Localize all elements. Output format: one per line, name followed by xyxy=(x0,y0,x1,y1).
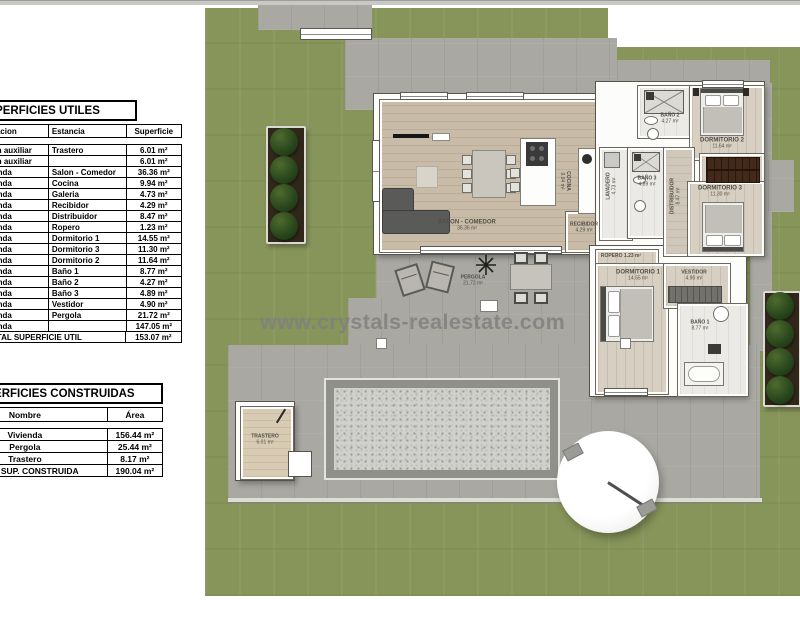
trastero-annex xyxy=(289,452,311,476)
outdoor-chair xyxy=(514,252,528,264)
pergola-post xyxy=(620,338,631,349)
cell-edificacion: Vivienda xyxy=(0,200,49,210)
cell-estancia: Galeria xyxy=(49,189,127,199)
construidas-total-value: 190.04 m² xyxy=(108,465,163,476)
cell-nombre: Trastero xyxy=(0,453,108,464)
cell-superficie: 11.30 m² xyxy=(127,244,182,254)
bush-icon xyxy=(270,184,298,212)
wardrobe-2 xyxy=(706,170,760,183)
table-row: ViviendaPergola21.72 m² xyxy=(0,310,182,321)
cell-edificacion: Vivienda xyxy=(0,244,49,254)
cell-edificacion: Vivienda xyxy=(0,189,49,199)
utiles-rows: Edificacion auxiliarTrastero6.01 m²Edifi… xyxy=(0,144,182,332)
cell-estancia: Baño 3 xyxy=(49,288,127,298)
table-row: ViviendaRopero1.23 m² xyxy=(0,222,182,233)
table-row: Edificacion auxiliar6.01 m² xyxy=(0,156,182,167)
construidas-header-nombre: Nombre xyxy=(0,408,108,421)
outdoor-chair xyxy=(534,292,548,304)
cell-estancia: Distribuidor xyxy=(49,211,127,221)
utiles-header-estancia: Estancia xyxy=(49,125,127,137)
cell-edificacion: Vivienda xyxy=(0,178,49,188)
cell-superficie: 4.73 m² xyxy=(127,189,182,199)
table-row: Pergola25.44 m² xyxy=(0,441,163,453)
cell-estancia: Dormitorio 1 xyxy=(49,233,127,243)
label-trastero: TRASTERO6.01 m² xyxy=(251,434,279,446)
plant-icon xyxy=(476,255,496,275)
cell-superficie: 6.01 m² xyxy=(127,145,182,155)
table-row: Vivienda147.05 m² xyxy=(0,321,182,332)
cell-area: 8.17 m² xyxy=(108,453,163,464)
nightstand xyxy=(693,88,699,96)
cell-superficie: 9.94 m² xyxy=(127,178,182,188)
table-row: Trastero8.17 m² xyxy=(0,453,163,465)
label-recibidor: RECIBIDOR4.29 m² xyxy=(570,222,598,234)
outdoor-chair xyxy=(534,252,548,264)
cell-estancia xyxy=(49,156,127,166)
cell-edificacion: Vivienda xyxy=(0,266,49,276)
burner xyxy=(530,156,535,161)
superficies-construidas-table: SUPERFICIES CONSTRUIDAS Nombre Área Vivi… xyxy=(0,383,163,477)
label-salon: SALON - COMEDOR36.36 m² xyxy=(438,220,496,233)
bath-mat xyxy=(708,344,721,354)
table-row: ViviendaRecibidor4.29 m² xyxy=(0,200,182,211)
cell-superficie: 147.05 m² xyxy=(127,321,182,331)
table-row: ViviendaCocina9.94 m² xyxy=(0,178,182,189)
cell-edificacion: Vivienda xyxy=(0,310,49,320)
wardrobe-1 xyxy=(706,157,760,170)
cell-superficie: 4.27 m² xyxy=(127,277,182,287)
label-cocina: COCINA9.94 m² xyxy=(558,171,570,191)
bush-icon xyxy=(270,128,298,156)
label-dormitorio3: DORMITORIO 311.30 m² xyxy=(698,186,742,199)
label-bano1: BAÑO 18.77 m² xyxy=(691,320,710,332)
utiles-header-superficie: Superficie xyxy=(127,125,182,137)
cell-area: 25.44 m² xyxy=(108,441,163,452)
cell-edificacion: Vivienda xyxy=(0,222,49,232)
toilet-bano3 xyxy=(634,200,646,212)
cell-estancia: Recibidor xyxy=(49,200,127,210)
living-window-2 xyxy=(466,92,524,100)
floor-plan-page: SALON - COMEDOR36.36 m² COCINA9.94 m² RE… xyxy=(0,0,800,640)
construidas-header-area: Área xyxy=(108,408,163,421)
cell-superficie: 11.64 m² xyxy=(127,255,182,265)
dining-table xyxy=(472,150,506,198)
cell-nombre: Pergola xyxy=(0,441,108,452)
outdoor-table xyxy=(510,264,552,290)
label-vestidor: VESTIDOR4.90 m² xyxy=(681,270,707,282)
bed-dormitorio2 xyxy=(700,88,744,136)
table-row: Edificacion auxiliarTrastero6.01 m² xyxy=(0,145,182,156)
cell-edificacion: Vivienda xyxy=(0,288,49,298)
sideboard xyxy=(432,133,450,141)
label-distribuidor: DISTRIBUIDOR8.47 m² xyxy=(670,178,682,214)
cell-edificacion: Vivienda xyxy=(0,321,49,331)
terrace-bottom-curb xyxy=(228,498,762,503)
construidas-total-row: TOTAL SUP. CONSTRUIDA 190.04 m² xyxy=(0,465,163,477)
rug xyxy=(416,166,438,188)
utiles-header-edificacion: Edificacion xyxy=(0,125,49,137)
terrace-right-porch xyxy=(768,160,794,212)
table-row: ViviendaSalon - Comedor36.36 m² xyxy=(0,167,182,178)
nightstand xyxy=(743,88,749,96)
cell-superficie: 14.55 m² xyxy=(127,233,182,243)
cell-estancia: Pergola xyxy=(49,310,127,320)
sink-bano2 xyxy=(644,116,658,125)
table-row: ViviendaBaño 34.89 m² xyxy=(0,288,182,299)
cell-estancia: Baño 2 xyxy=(49,277,127,287)
pool xyxy=(334,388,550,470)
cell-nombre: Vivienda xyxy=(0,429,108,440)
cell-edificacion: Vivienda xyxy=(0,167,49,177)
gate xyxy=(300,28,372,40)
cell-superficie: 8.47 m² xyxy=(127,211,182,221)
construidas-title: SUPERFICIES CONSTRUIDAS xyxy=(0,383,163,404)
cell-superficie: 4.29 m² xyxy=(127,200,182,210)
kitchen-sink xyxy=(582,154,592,164)
table-row: Vivienda156.44 m² xyxy=(0,429,163,441)
cell-edificacion: Vivienda xyxy=(0,277,49,287)
dorm1-window xyxy=(604,388,648,396)
living-window-1 xyxy=(400,92,448,100)
table-row: ViviendaDormitorio 114.55 m² xyxy=(0,233,182,244)
burner xyxy=(539,156,544,161)
table-row: ViviendaDormitorio 211.64 m² xyxy=(0,255,182,266)
cell-estancia: Trastero xyxy=(49,145,127,155)
bush-icon xyxy=(766,348,794,376)
superficies-utiles-table: SUPERFICIES UTILES Edificacion Estancia … xyxy=(0,100,182,343)
burner xyxy=(530,146,535,151)
label-dormitorio1: DORMITORIO 114.55 m² xyxy=(616,270,660,283)
page-bottom-border xyxy=(0,0,800,5)
bathtub-bano1 xyxy=(684,362,724,386)
cooktop xyxy=(526,142,548,166)
shower-head xyxy=(634,154,641,161)
bush-icon xyxy=(270,156,298,184)
dining-chair xyxy=(462,183,472,193)
sink-bano1 xyxy=(713,306,729,322)
outdoor-chair xyxy=(514,292,528,304)
table-row: ViviendaVestidor4.90 m² xyxy=(0,299,182,310)
utiles-title: SUPERFICIES UTILES xyxy=(0,100,137,121)
cell-estancia: Salon - Comedor xyxy=(49,167,127,177)
bar-stool xyxy=(510,168,520,178)
vestidor-wardrobe xyxy=(668,286,722,303)
shower-head xyxy=(646,92,654,100)
toilet-bano2 xyxy=(647,128,659,140)
cell-edificacion: Vivienda xyxy=(0,299,49,309)
cell-estancia: Vestidor xyxy=(49,299,127,309)
bed-dormitorio3 xyxy=(702,202,744,252)
cell-edificacion: Vivienda xyxy=(0,211,49,221)
bush-icon xyxy=(766,376,794,404)
cell-estancia xyxy=(49,321,127,331)
dorm2-window xyxy=(702,80,744,88)
cell-estancia: Dormitorio 3 xyxy=(49,244,127,254)
cell-superficie: 8.77 m² xyxy=(127,266,182,276)
dining-chair xyxy=(462,155,472,165)
utiles-total-label: TOTAL SUPERFICIE UTIL xyxy=(0,332,126,342)
bush-icon xyxy=(766,320,794,348)
label-ropero: ROPERO 1.23 m² xyxy=(601,254,641,260)
bush-icon xyxy=(766,292,794,320)
cell-superficie: 36.36 m² xyxy=(127,167,182,177)
construidas-header-row: Nombre Área xyxy=(0,407,163,422)
table-row: ViviendaBaño 24.27 m² xyxy=(0,277,182,288)
cell-edificacion: Vivienda xyxy=(0,233,49,243)
watermark: www.crystals-realestate.com xyxy=(260,310,565,335)
label-bano2: BAÑO 24.27 m² xyxy=(661,113,680,125)
bar-stool xyxy=(510,182,520,192)
construidas-total-label: TOTAL SUP. CONSTRUIDA xyxy=(0,465,108,476)
cell-estancia: Ropero xyxy=(49,222,127,232)
utiles-total-value: 153.07 m² xyxy=(126,332,182,342)
table-row: ViviendaGaleria4.73 m² xyxy=(0,189,182,200)
cell-estancia: Baño 1 xyxy=(49,266,127,276)
cell-edificacion: Vivienda xyxy=(0,255,49,265)
utiles-header-row: Edificacion Estancia Superficie xyxy=(0,124,182,138)
dining-chair xyxy=(462,169,472,179)
cell-edificacion: Edificacion auxiliar xyxy=(0,145,49,155)
tv-unit xyxy=(393,134,429,138)
label-dormitorio2: DORMITORIO 211.64 m² xyxy=(700,138,744,151)
living-window-left xyxy=(372,140,380,202)
pergola-post xyxy=(376,338,387,349)
table-row: ViviendaBaño 18.77 m² xyxy=(0,266,182,277)
cell-edificacion: Edificacion auxiliar xyxy=(0,156,49,166)
dining-chair xyxy=(506,155,516,165)
cell-area: 156.44 m² xyxy=(108,429,163,440)
label-bano3: BAÑO 34.89 m² xyxy=(638,176,657,188)
cell-superficie: 6.01 m² xyxy=(127,156,182,166)
table-row: ViviendaDormitorio 311.30 m² xyxy=(0,244,182,255)
burner xyxy=(539,146,544,151)
cell-superficie: 4.89 m² xyxy=(127,288,182,298)
utiles-total-row: TOTAL SUPERFICIE UTIL 153.07 m² xyxy=(0,332,182,343)
cell-estancia: Cocina xyxy=(49,178,127,188)
label-lavadero: LAVADERO4.73 m² xyxy=(606,172,618,199)
washing-machine xyxy=(604,152,620,168)
bush-icon xyxy=(270,212,298,240)
table-row: ViviendaDistribuidor8.47 m² xyxy=(0,211,182,222)
cell-superficie: 4.90 m² xyxy=(127,299,182,309)
cell-superficie: 1.23 m² xyxy=(127,222,182,232)
cell-superficie: 21.72 m² xyxy=(127,310,182,320)
label-pergola: PERGOLA21.72 m² xyxy=(461,275,486,287)
cell-estancia: Dormitorio 2 xyxy=(49,255,127,265)
bed-dormitorio1 xyxy=(600,286,654,342)
construidas-rows: Vivienda156.44 m²Pergola25.44 m²Trastero… xyxy=(0,428,163,465)
